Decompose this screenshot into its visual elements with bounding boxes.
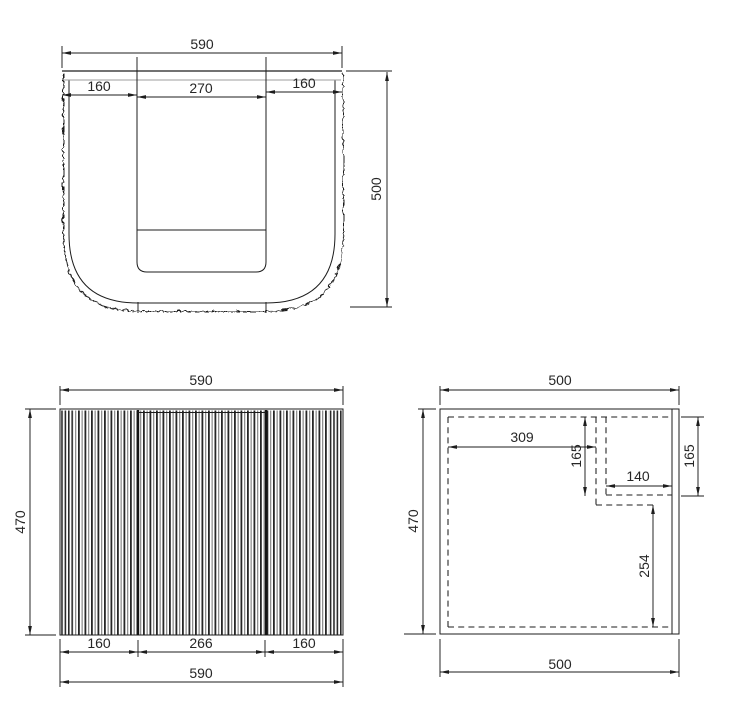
front-view: 590 470 160 266 160 590 xyxy=(12,372,343,687)
dim-label-top-right-offset: 160 xyxy=(292,75,316,91)
dim-label-side-clearance: 254 xyxy=(636,554,652,578)
dim-label-front-height: 470 xyxy=(12,510,28,534)
side-view-outline xyxy=(440,409,679,634)
drawing-canvas: 590 160 270 160 500 590 470 160 266 160 … xyxy=(0,0,739,726)
top-view: 590 160 270 160 500 xyxy=(62,36,392,313)
dim-label-side-cutout-offset: 309 xyxy=(510,429,534,445)
side-view-hidden-lines xyxy=(448,417,672,627)
dim-label-front-width-bottom: 590 xyxy=(189,665,213,681)
top-view-inner-wall xyxy=(69,80,335,303)
dim-label-side-depth-top: 500 xyxy=(548,372,572,388)
dim-label-side-height: 470 xyxy=(405,509,421,533)
front-flute-texture-right-edge xyxy=(328,411,343,635)
front-flute-texture xyxy=(74,411,328,635)
side-view: 500 470 309 165 140 165 254 500 xyxy=(404,372,704,677)
side-view-dimension-arrows xyxy=(421,388,700,674)
dim-label-side-depth-bottom: 500 xyxy=(548,656,572,672)
dim-label-top-basin-width: 270 xyxy=(189,80,213,96)
top-view-fluted-outer-edge xyxy=(62,72,342,310)
dim-label-top-depth: 500 xyxy=(368,177,384,201)
top-view-basin-cutout xyxy=(137,71,266,272)
dim-label-front-door-left: 160 xyxy=(87,635,111,651)
dim-label-front-width-top: 590 xyxy=(189,372,213,388)
dim-label-side-cutout-width: 140 xyxy=(626,468,650,484)
dim-label-side-cutout-depth-right: 165 xyxy=(681,444,697,468)
dim-label-front-door-right: 160 xyxy=(292,635,316,651)
dim-label-side-cutout-depth-left: 165 xyxy=(568,444,584,468)
dim-label-front-door-center: 266 xyxy=(189,635,213,651)
front-flute-texture-left-edge xyxy=(61,411,75,635)
technical-drawing: 590 160 270 160 500 590 470 160 266 160 … xyxy=(0,0,739,726)
dim-label-top-left-offset: 160 xyxy=(87,78,111,94)
dim-label-top-overall-width: 590 xyxy=(190,36,214,52)
side-view-dim-lines xyxy=(404,386,704,677)
top-view-dimension-arrows xyxy=(62,51,389,307)
